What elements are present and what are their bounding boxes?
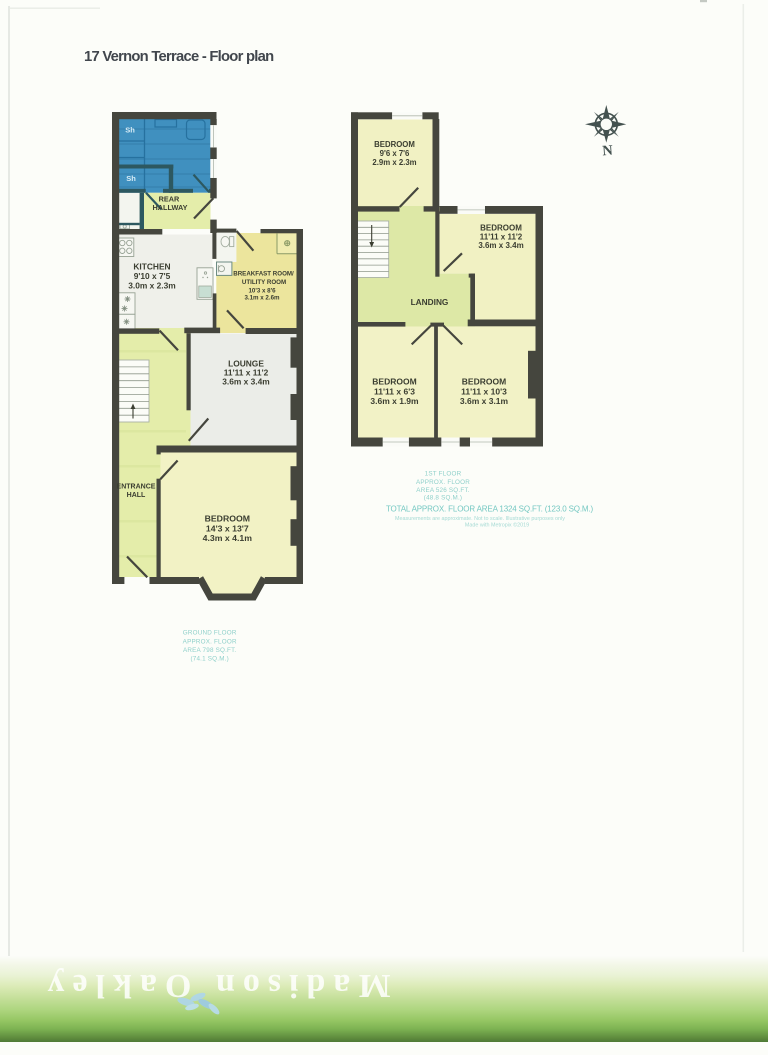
svg-text:AREA 526 SQ.FT.: AREA 526 SQ.FT.	[416, 487, 469, 494]
svg-text:3.6m x 3.1m: 3.6m x 3.1m	[460, 396, 509, 406]
svg-text:BEDROOM: BEDROOM	[374, 140, 415, 149]
svg-text:17 Vernon Terrace - Floor plan: 17 Vernon Terrace - Floor plan	[84, 49, 274, 65]
svg-text:BEDROOM: BEDROOM	[205, 514, 250, 524]
svg-text:Sh: Sh	[125, 126, 135, 135]
svg-text:3.6m x 1.9m: 3.6m x 1.9m	[370, 396, 419, 406]
svg-text:APPROX. FLOOR: APPROX. FLOOR	[183, 638, 237, 645]
svg-text:3.6m x 3.4m: 3.6m x 3.4m	[222, 377, 270, 387]
svg-text:Made with Metropix ©2019: Made with Metropix ©2019	[465, 521, 529, 528]
svg-text:N: N	[602, 143, 614, 160]
svg-text:REAR: REAR	[159, 194, 180, 203]
svg-text:3.6m x 3.4m: 3.6m x 3.4m	[478, 241, 523, 250]
svg-text:APPROX. FLOOR: APPROX. FLOOR	[416, 479, 470, 486]
svg-text:BREAKFAST ROOM/: BREAKFAST ROOM/	[233, 271, 294, 278]
svg-text:10'3 x 8'6: 10'3 x 8'6	[248, 287, 276, 294]
svg-text:14'3 x 13'7: 14'3 x 13'7	[206, 523, 249, 533]
svg-text:3.1m x 2.6m: 3.1m x 2.6m	[244, 294, 280, 301]
svg-text:HALLWAY: HALLWAY	[152, 203, 187, 212]
svg-text:4.3m x 4.1m: 4.3m x 4.1m	[203, 533, 253, 543]
svg-text:1ST FLOOR: 1ST FLOOR	[425, 471, 462, 478]
svg-text:UTILITY ROOM: UTILITY ROOM	[242, 279, 286, 286]
svg-text:2.9m x 2.3m: 2.9m x 2.3m	[372, 158, 416, 167]
svg-text:(48.8 SQ.M.): (48.8 SQ.M.)	[424, 494, 462, 501]
svg-text:BEDROOM: BEDROOM	[372, 377, 416, 387]
svg-text:GROUND FLOOR: GROUND FLOOR	[183, 630, 237, 637]
svg-text:11'11 x 6'3: 11'11 x 6'3	[374, 387, 415, 397]
svg-text:HALL: HALL	[127, 492, 146, 499]
svg-text:Measurements are approximate.: Measurements are approximate. Not to sca…	[395, 516, 565, 522]
svg-text:BEDROOM: BEDROOM	[462, 377, 506, 387]
svg-text:ENTRANCE: ENTRANCE	[117, 483, 156, 490]
svg-text:TOTAL APPROX. FLOOR AREA 1324: TOTAL APPROX. FLOOR AREA 1324 SQ.FT. (12…	[386, 504, 594, 513]
svg-text:Sh: Sh	[126, 174, 136, 183]
svg-text:(74.1 SQ.M.): (74.1 SQ.M.)	[190, 655, 228, 662]
svg-text:AREA 798 SQ.FT.: AREA 798 SQ.FT.	[183, 647, 236, 654]
svg-text:3.0m x 2.3m: 3.0m x 2.3m	[128, 280, 176, 290]
svg-text:LANDING: LANDING	[411, 297, 449, 307]
svg-text:11'11 x 10'3: 11'11 x 10'3	[461, 387, 507, 397]
svg-text:9'6 x 7'6: 9'6 x 7'6	[380, 149, 410, 158]
